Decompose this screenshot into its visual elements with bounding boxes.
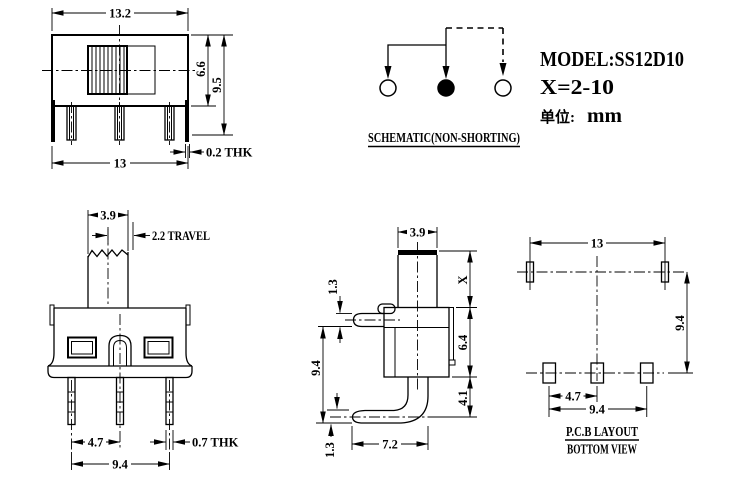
pcb-title: P.C.B LAYOUT: [566, 424, 638, 439]
actuator-view: 3.9 2.2 TRAVEL 4.7 9.4 0.7 THK: [48, 209, 239, 472]
schematic: SCHEMATIC(NON-SHORTING): [368, 28, 520, 147]
info-block: MODEL:SS12D10 X=2-10 单位: mm: [540, 47, 684, 127]
dim-knob-height: X: [456, 275, 470, 284]
arrow-down-icon: [385, 66, 392, 79]
terminal-common-icon: [438, 80, 454, 96]
front-dimensions: 13.2 6.6 9.5 13 0.2 THK: [52, 7, 253, 171]
dim-width-bottom: 13: [114, 157, 127, 171]
pcb-pads: [517, 237, 684, 383]
dim-side-knob-width: 3.9: [410, 226, 426, 240]
x-range: X=2-10: [540, 75, 614, 99]
dim-pad-pitch: 4.7: [565, 390, 581, 404]
schematic-symbol: [380, 28, 511, 96]
dim-row-gap: 9.4: [673, 314, 687, 330]
side-plate-left: [51, 100, 55, 142]
dim-total-height: 9.5: [210, 77, 224, 93]
front-body-outline: [42, 25, 198, 145]
dim-plate-thickness: 0.2 THK: [206, 146, 253, 160]
dim-side-pin-thickness: 1.3: [326, 279, 340, 295]
side-view: 3.9 1.3 9.4 1.3 7.2 X: [309, 226, 477, 458]
dim-pin-thickness: 0.7 THK: [192, 436, 239, 450]
side-body-outline: [330, 242, 455, 423]
technical-drawing-page: 13.2 6.6 9.5 13 0.2 THK: [0, 0, 750, 480]
dim-foot-drop: 4.1: [456, 390, 470, 406]
dim-foot-thickness: 1.3: [323, 442, 337, 458]
dim-pin-pitch: 4.7: [88, 436, 104, 450]
dim-travel: 2.2 TRAVEL: [152, 229, 210, 243]
unit-label: 单位:: [540, 108, 575, 126]
dim-pad-span: 9.4: [589, 403, 605, 417]
dim-body-height: 6.6: [194, 61, 208, 77]
arrow-down-icon: [500, 63, 507, 76]
side-plate-right: [185, 100, 189, 142]
model-number: MODEL:SS12D10: [540, 47, 684, 71]
unit-value: mm: [587, 103, 622, 127]
dim-foot-length: 7.2: [382, 438, 398, 452]
front-view: 13.2 6.6 9.5 13 0.2 THK: [42, 7, 253, 171]
actuator-body-outline: [48, 305, 192, 448]
terminal-open-icon: [380, 80, 396, 96]
slide-switch-drawing: 13.2 6.6 9.5 13 0.2 THK: [0, 0, 750, 480]
terminal-open-icon: [495, 80, 511, 96]
dim-pin-span: 9.4: [112, 458, 128, 472]
pcb-subtitle: BOTTOM VIEW: [567, 442, 637, 457]
front-pins: [67, 102, 174, 145]
pcb-caption: P.C.B LAYOUT BOTTOM VIEW: [565, 424, 639, 457]
pcb-view: 13 9.4 4.7 9.4 P.C.B LAYOUT BOTTOM VIEW: [517, 237, 693, 457]
actuator-pins: [68, 378, 173, 471]
dim-knob-width: 3.9: [100, 209, 116, 223]
arrow-down-icon: [443, 66, 450, 79]
dim-width-top: 13.2: [109, 7, 131, 21]
dim-side-body-height: 6.4: [456, 334, 470, 350]
schematic-caption: SCHEMATIC(NON-SHORTING): [368, 130, 520, 145]
dim-side-pin-to-foot: 9.4: [309, 359, 323, 375]
dim-mount-span: 13: [591, 237, 604, 251]
